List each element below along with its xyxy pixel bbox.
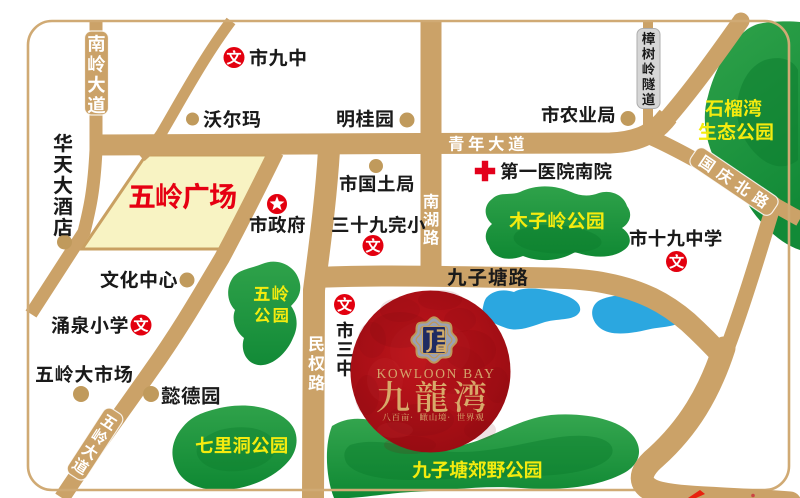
svg-text:KOWLOON BAY: KOWLOON BAY: [376, 366, 495, 381]
